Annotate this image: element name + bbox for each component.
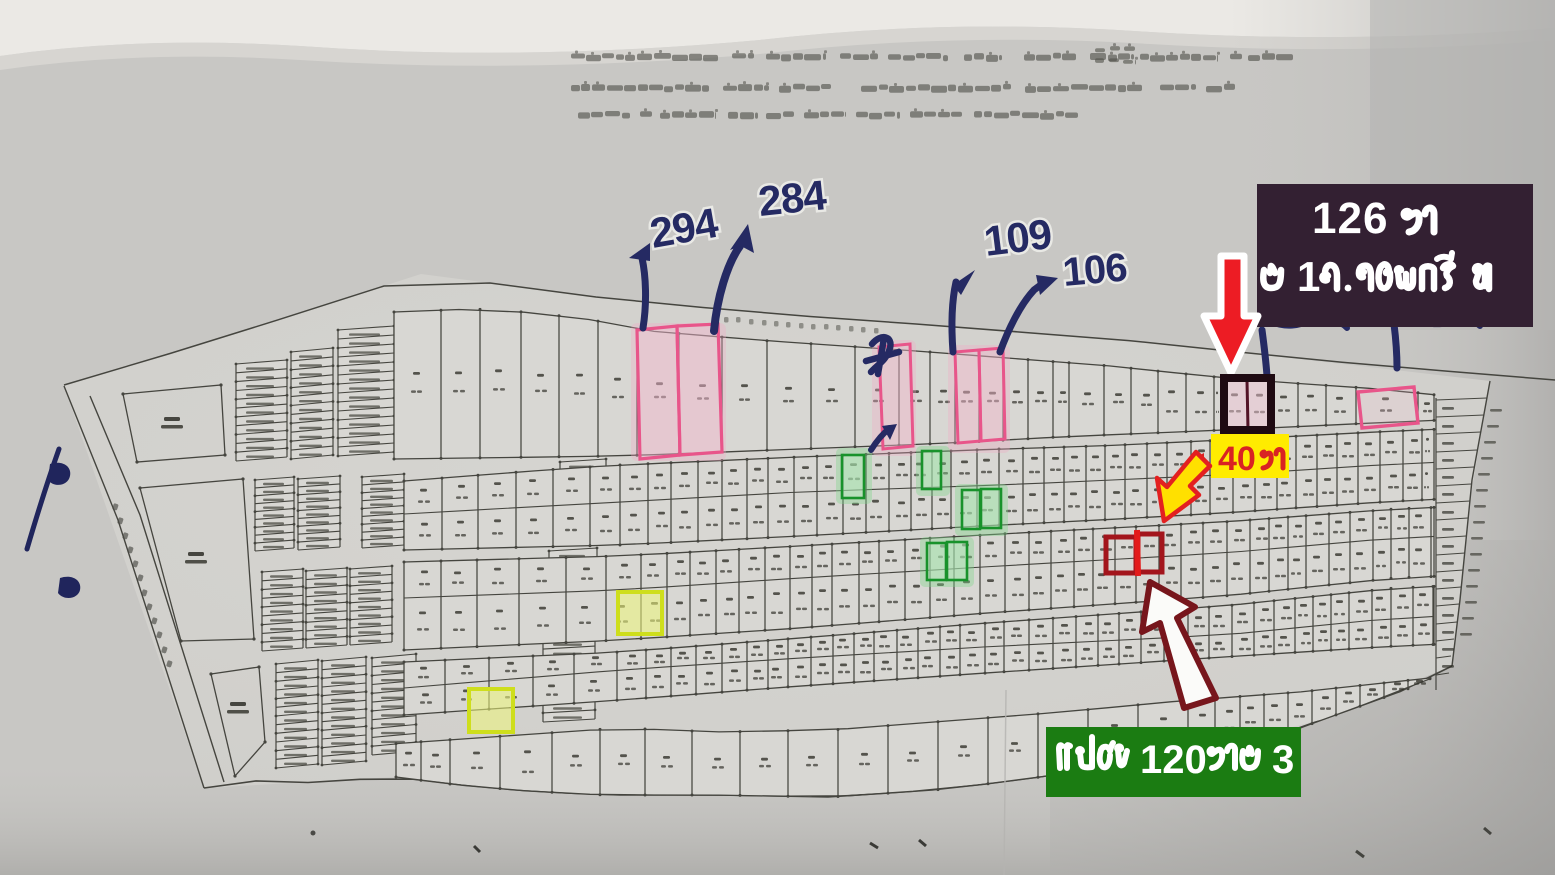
svg-text:284: 284 xyxy=(756,171,829,225)
svg-text:109: 109 xyxy=(981,210,1053,265)
svg-text:120: 120 xyxy=(1140,738,1207,782)
svg-text:3: 3 xyxy=(1272,738,1294,782)
svg-text:106: 106 xyxy=(1061,246,1128,295)
svg-text:40: 40 xyxy=(1218,440,1256,478)
svg-text:126: 126 xyxy=(1312,194,1389,243)
svg-text:1: 1 xyxy=(1297,253,1320,300)
